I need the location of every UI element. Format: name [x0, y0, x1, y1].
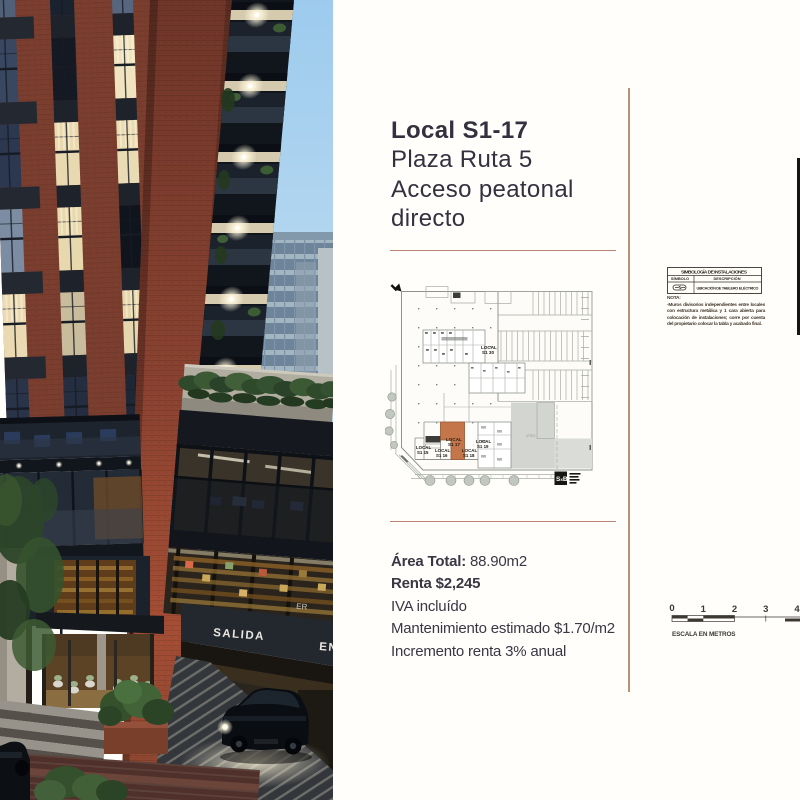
svg-text:S1 18: S1 18: [463, 453, 475, 458]
svg-text:SÍMBOLO: SÍMBOLO: [671, 276, 689, 281]
svg-text:ESCALA EN METROS: ESCALA EN METROS: [672, 631, 736, 638]
svg-text:2: 2: [732, 604, 737, 615]
svg-text:0: 0: [669, 603, 674, 614]
svg-text:DESCRIPCIÓN: DESCRIPCIÓN: [713, 276, 740, 281]
svg-text:S1 15: S1 15: [417, 450, 429, 455]
svg-text:ATRIO: ATRIO: [526, 434, 536, 438]
svg-text:SxB: SxB: [556, 476, 568, 483]
svg-text:EN: EN: [319, 641, 333, 654]
svg-text:S1 30: S1 30: [482, 350, 494, 355]
svg-text:S1 16: S1 16: [436, 453, 448, 458]
svg-text:ER: ER: [296, 602, 308, 612]
svg-text:S1 19: S1 19: [477, 444, 489, 449]
svg-text:S1 17: S1 17: [448, 442, 460, 447]
svg-text:4: 4: [794, 604, 800, 615]
svg-text:1: 1: [701, 604, 707, 615]
svg-text:3: 3: [763, 604, 768, 615]
svg-text:UBICACIÓN DE TABLERO ELÉCTRICO: UBICACIÓN DE TABLERO ELÉCTRICO: [697, 286, 759, 291]
